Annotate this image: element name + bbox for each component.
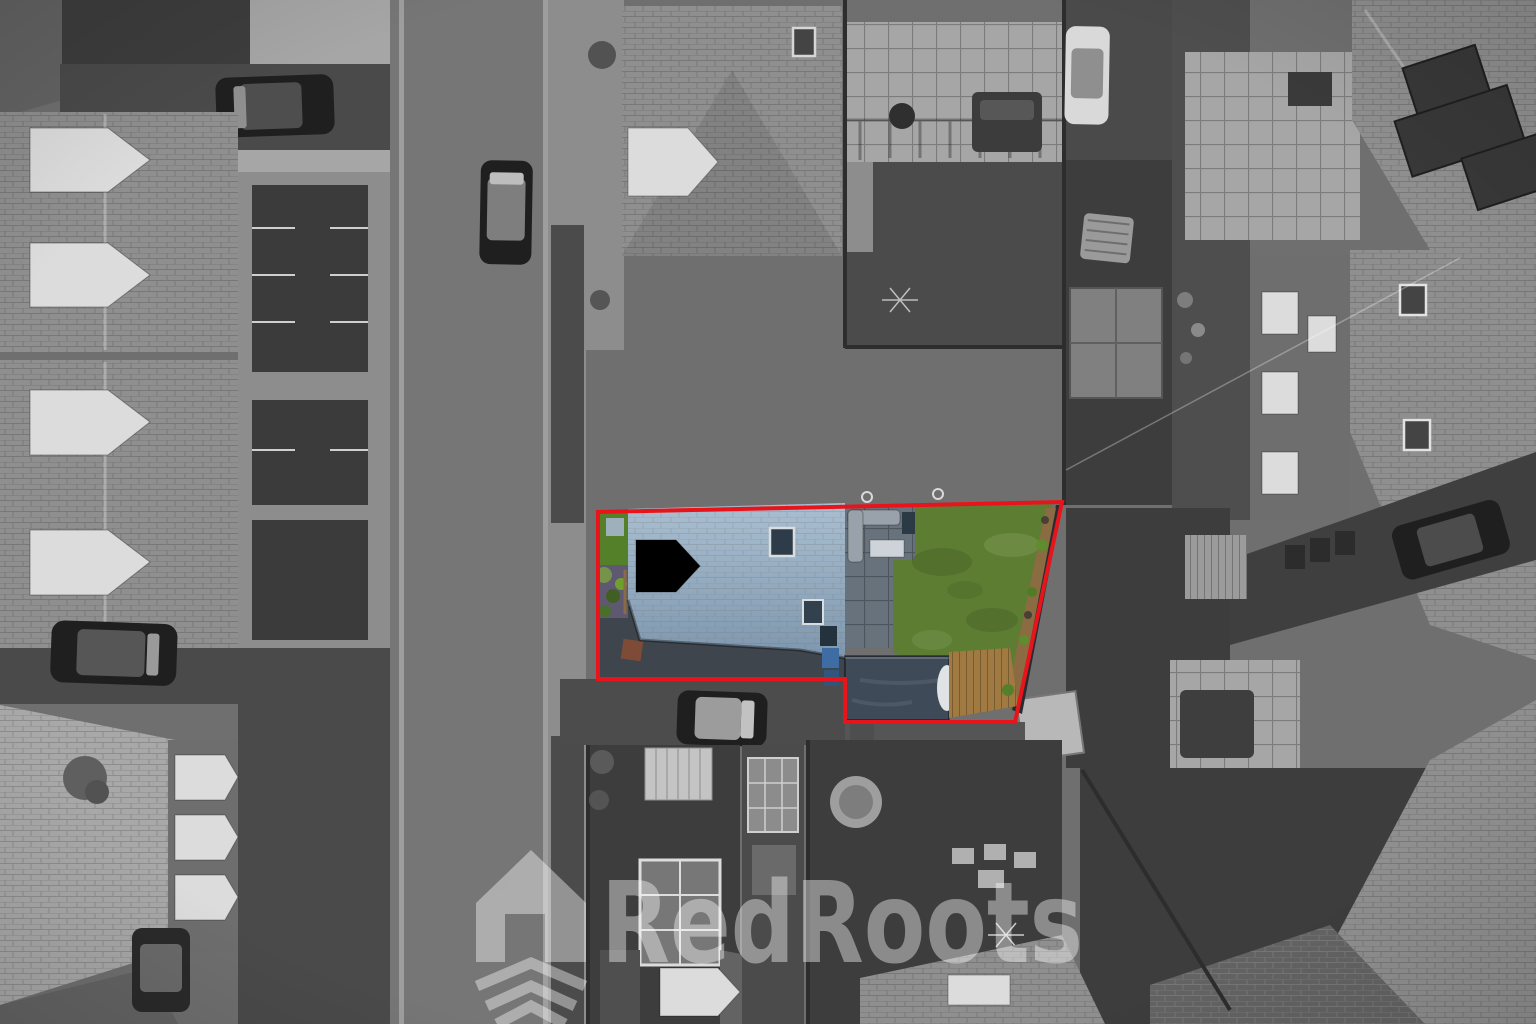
watermark-text: RedRoots bbox=[601, 859, 1083, 989]
aerial-photo: RedRoots bbox=[0, 0, 1536, 1024]
